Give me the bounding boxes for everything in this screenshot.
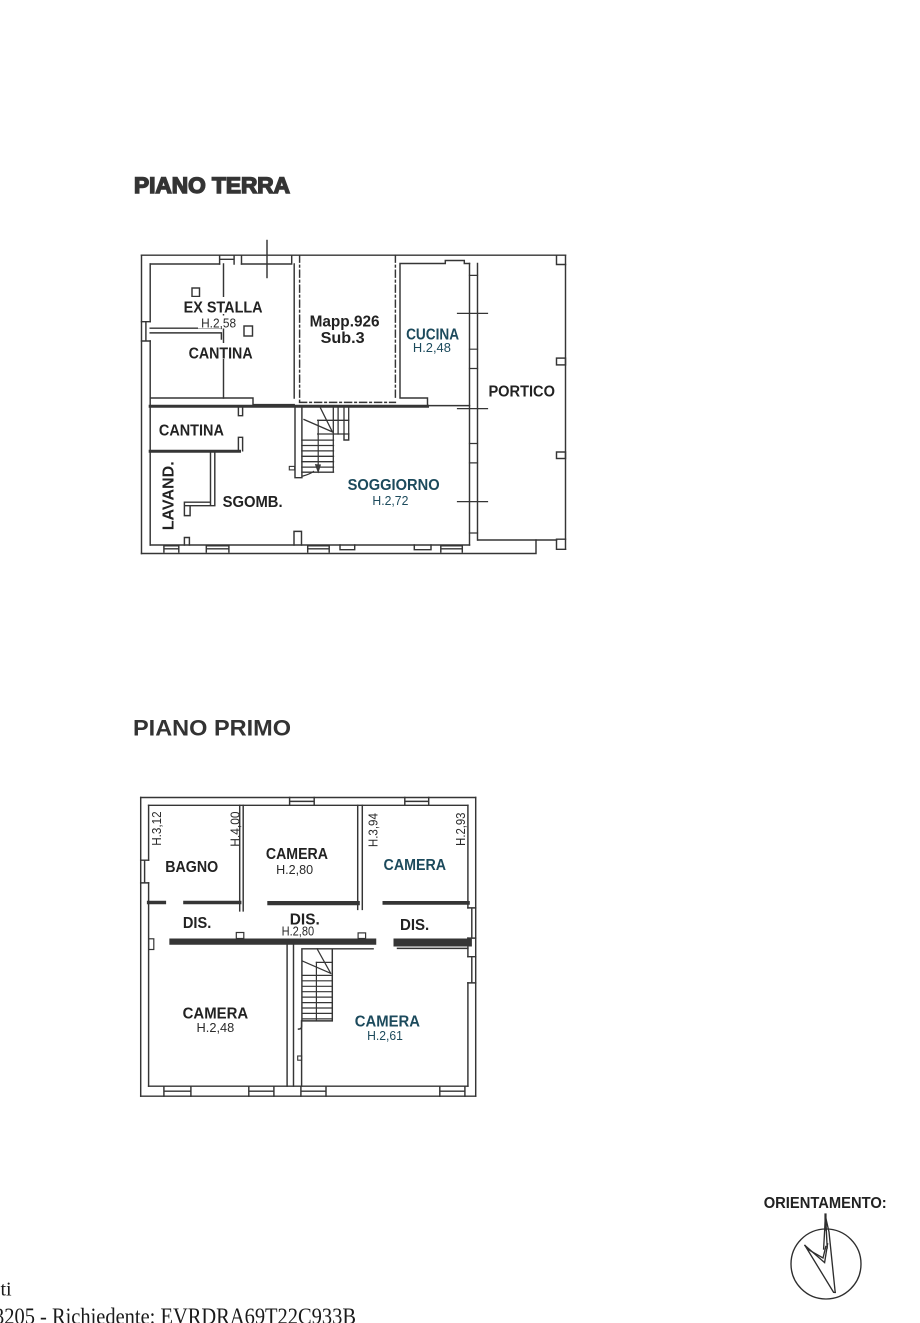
svg-text:EX STALLA: EX STALLA [184,300,263,317]
svg-text:H.2,72: H.2,72 [372,493,408,508]
svg-text:PIANO PRIMO: PIANO PRIMO [133,716,291,741]
svg-text:3205 - Richiedente: EVRDRA69T2: 3205 - Richiedente: EVRDRA69T22C933B [0,1304,356,1323]
svg-text:DIS.: DIS. [400,917,429,934]
svg-text:H.4,00: H.4,00 [227,812,242,847]
svg-text:CANTINA: CANTINA [189,346,253,363]
svg-text:H.2,93: H.2,93 [453,813,468,846]
svg-text:ti: ti [1,1279,13,1301]
svg-text:H.2,48: H.2,48 [197,1020,235,1035]
svg-text:H.2,58: H.2,58 [201,316,236,331]
svg-text:CAMERA: CAMERA [384,857,447,874]
svg-text:Mapp.926: Mapp.926 [310,313,380,330]
svg-text:H.2,48: H.2,48 [413,340,451,355]
svg-text:SOGGIORNO: SOGGIORNO [348,477,440,494]
svg-text:PIANO TERRA: PIANO TERRA [134,173,290,198]
svg-text:DIS.: DIS. [183,915,211,932]
svg-text:ORIENTAMENTO:: ORIENTAMENTO: [764,1195,887,1212]
svg-text:CAMERA: CAMERA [266,846,328,863]
svg-text:H.2,61: H.2,61 [367,1028,403,1043]
svg-text:PORTICO: PORTICO [488,383,555,400]
svg-text:H.2,80: H.2,80 [282,923,315,938]
svg-text:H.2,80: H.2,80 [276,862,313,877]
svg-text:H.3,12: H.3,12 [149,811,164,845]
svg-text:SGOMB.: SGOMB. [223,494,283,511]
svg-text:BAGNO: BAGNO [165,859,218,876]
svg-text:LAVAND.: LAVAND. [161,461,178,530]
svg-text:CANTINA: CANTINA [159,422,224,439]
svg-text:Sub.3: Sub.3 [321,330,365,347]
svg-text:H.3,94: H.3,94 [366,813,381,847]
